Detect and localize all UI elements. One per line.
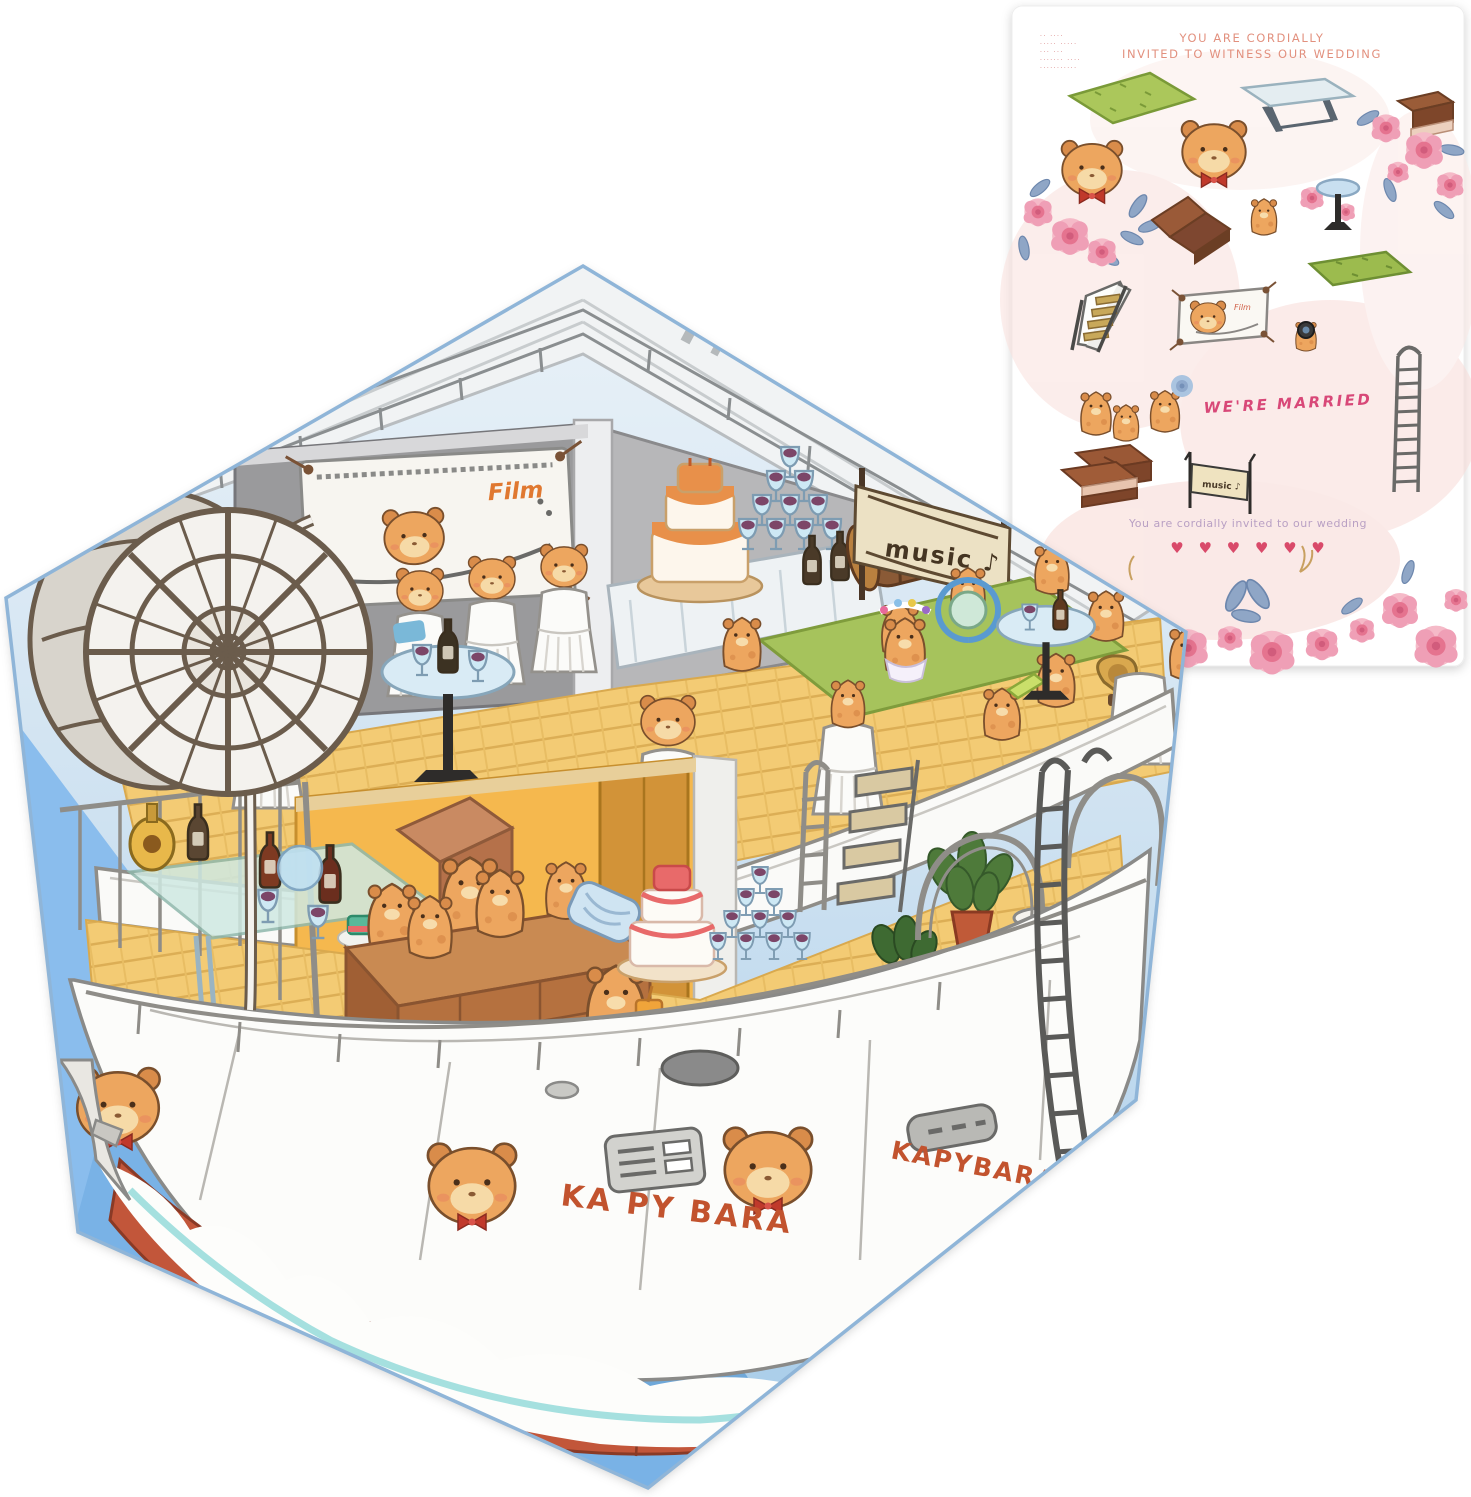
- film-banner-label: Film: [1234, 303, 1251, 312]
- capybara-sticker-small: [1251, 199, 1276, 235]
- fine-print-line: ···········: [1040, 65, 1077, 72]
- film-screen-label: Film: [487, 477, 544, 506]
- fine-print-line: ·· ····: [1040, 33, 1064, 40]
- fine-print-line: ····· ·····: [1040, 41, 1077, 48]
- invite-text: You are cordially invited to our wedding: [1128, 517, 1367, 530]
- sheet-header-line2: INVITED TO WITNESS OUR WEDDING: [1122, 47, 1382, 61]
- sheet-header-line1: YOU ARE CORDIALLY: [1179, 31, 1325, 45]
- porthole: [662, 1051, 738, 1085]
- hull-detail: [546, 1082, 578, 1098]
- fine-print-line: ··· ···: [1040, 49, 1064, 56]
- vent-grille: [604, 1127, 705, 1193]
- dessert-dome: [278, 846, 322, 890]
- hearts-row: ♥ ♥ ♥ ♥ ♥ ♥: [1170, 539, 1330, 557]
- fine-print-line: ······· ····: [1040, 57, 1081, 64]
- illustration-canvas: ·· ···· ····· ····· ··· ··· ······· ····…: [0, 0, 1471, 1497]
- capybara-photographer-sticker: [1296, 322, 1316, 351]
- product-photo: ·· ···· ····· ····· ··· ··· ······· ····…: [0, 0, 1471, 1497]
